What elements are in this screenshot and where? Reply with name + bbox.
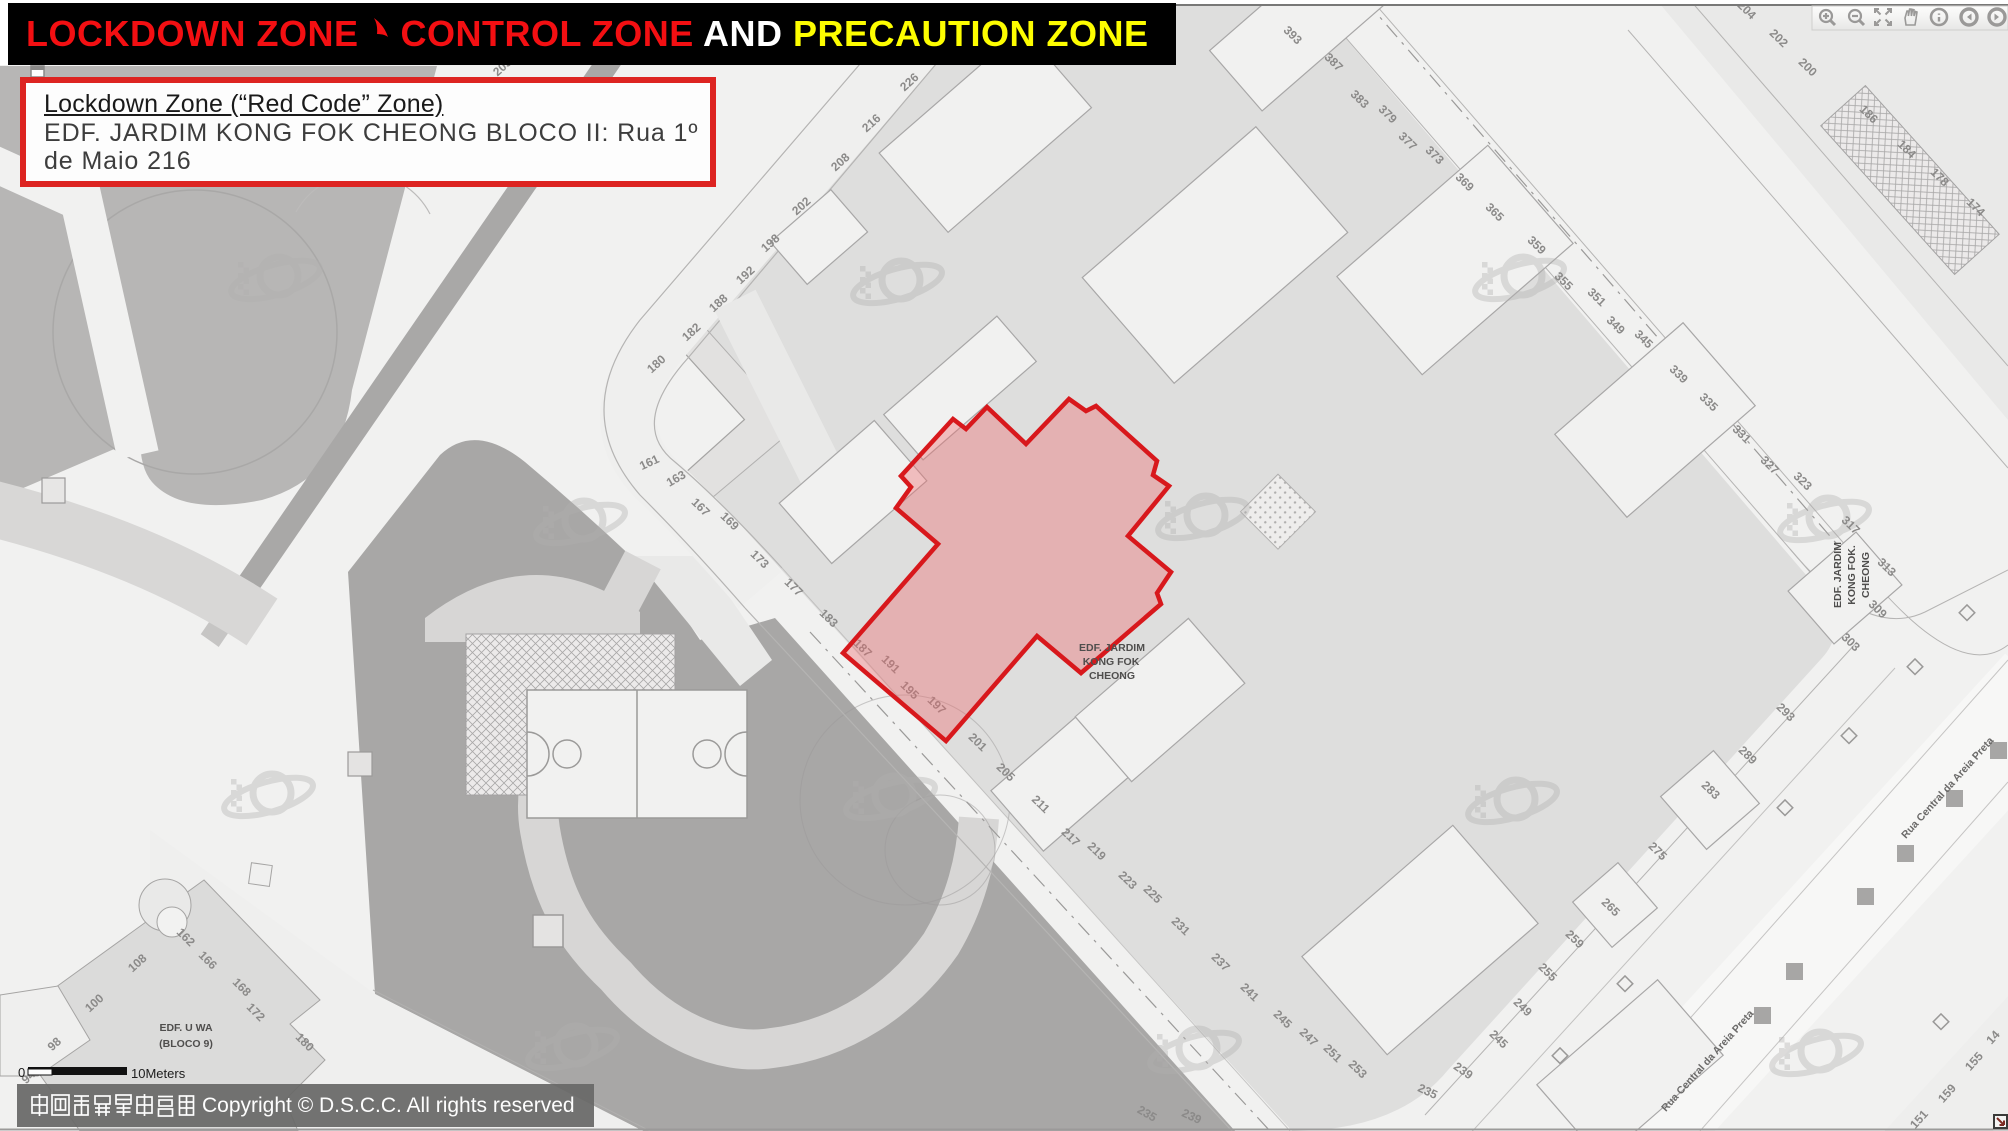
svg-text:KONG FOK.: KONG FOK.	[1846, 545, 1858, 605]
svg-text:(BLOCO 9): (BLOCO 9)	[159, 1038, 213, 1050]
svg-text:KONG FOK: KONG FOK	[1083, 656, 1140, 668]
svg-text:10Meters: 10Meters	[131, 1066, 186, 1081]
svg-text:CHEONG: CHEONG	[1089, 670, 1135, 682]
svg-text:0: 0	[18, 1065, 25, 1080]
svg-text:EDF. JARDIM: EDF. JARDIM	[1079, 642, 1145, 654]
svg-text:EDF. U WA: EDF. U WA	[159, 1022, 213, 1034]
svg-text:EDF. JARDIM: EDF. JARDIM	[1832, 542, 1844, 608]
svg-text:CHEONG: CHEONG	[1860, 552, 1872, 598]
